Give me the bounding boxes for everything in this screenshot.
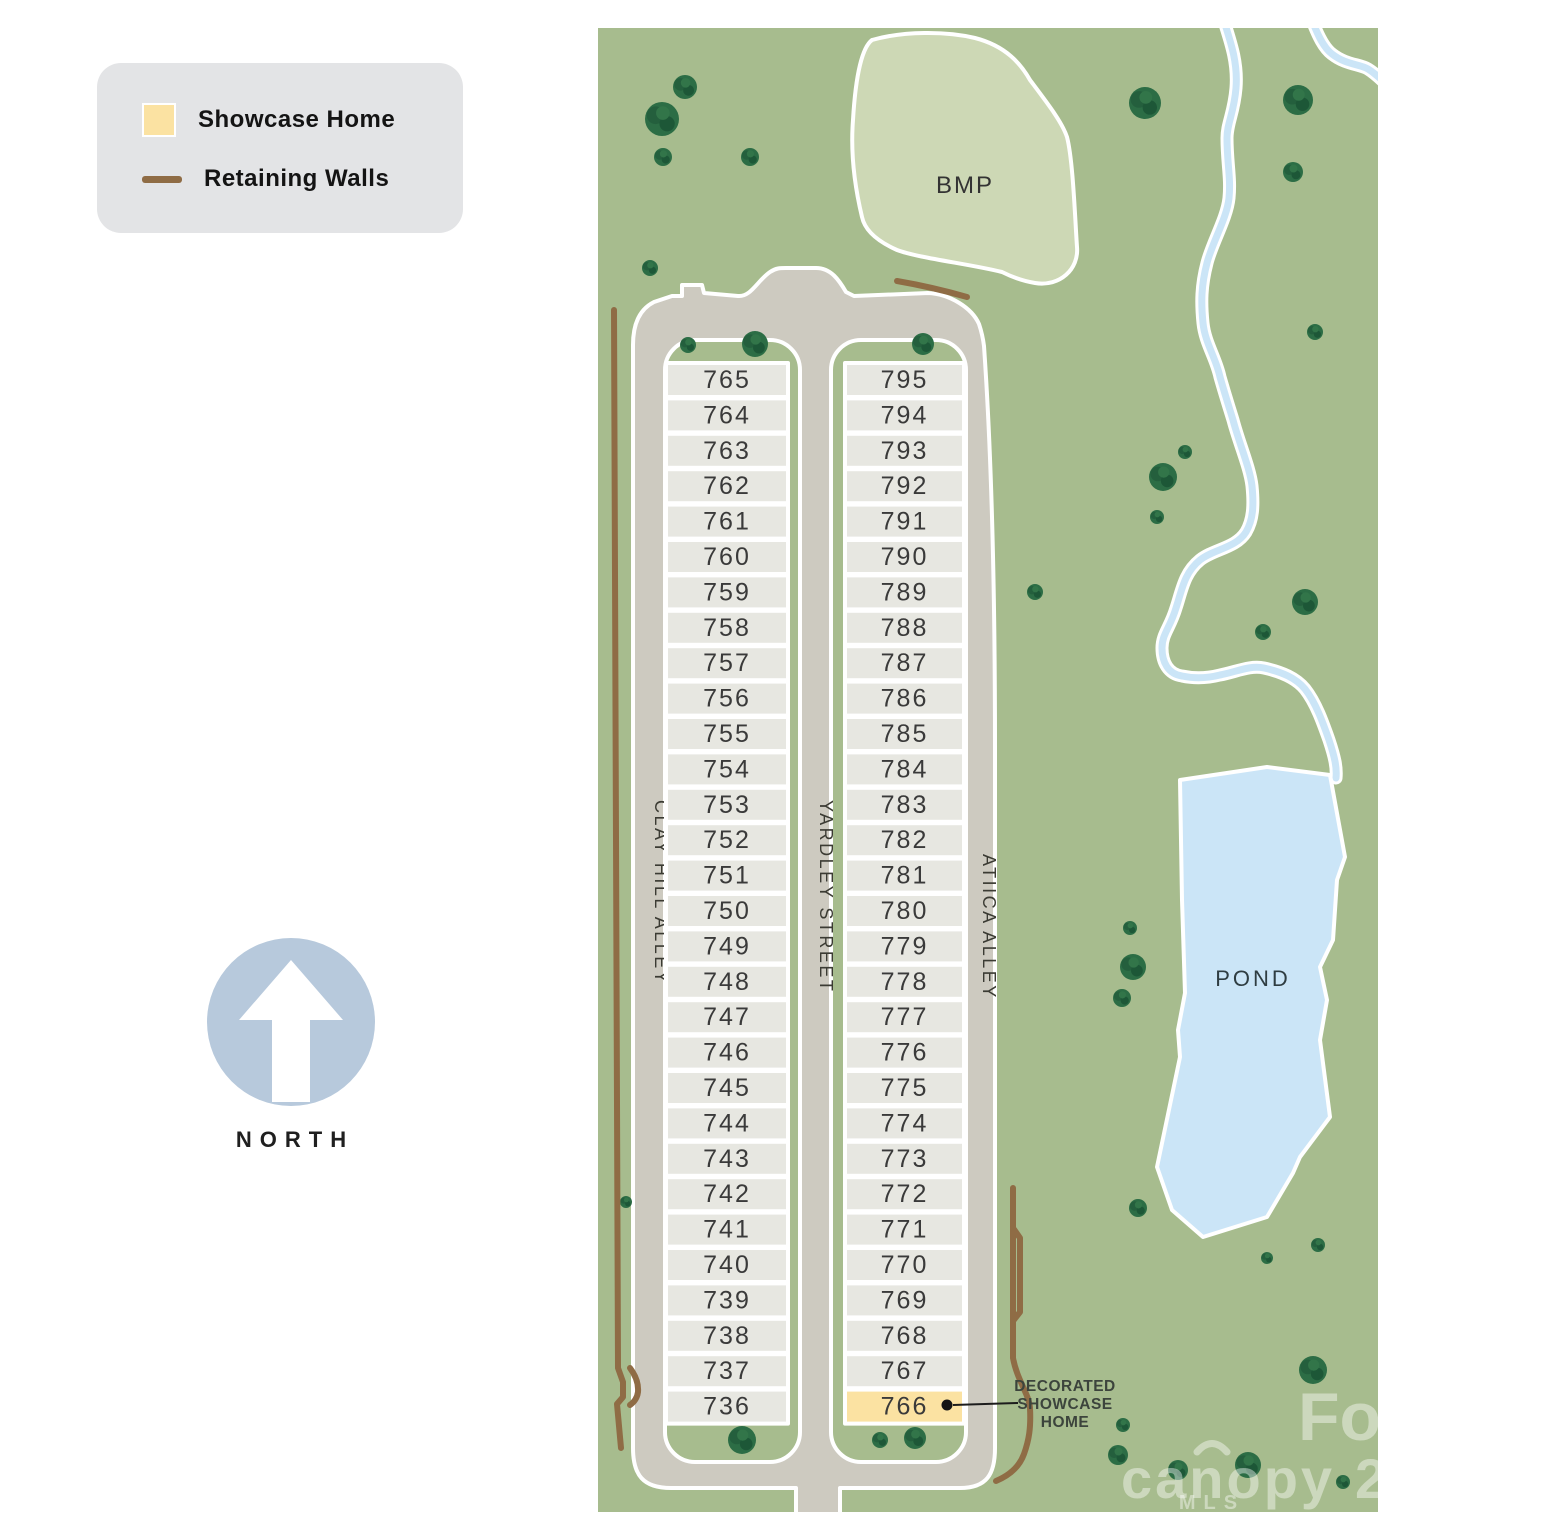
tree-icon — [654, 148, 672, 166]
legend-row-retaining: Retaining Walls — [142, 165, 463, 193]
tree-icon — [1261, 1252, 1273, 1264]
lot-number: 770 — [881, 1251, 929, 1279]
watermark-mls: MLS — [1179, 1492, 1245, 1512]
lot-number: 792 — [881, 472, 929, 500]
lot-number: 794 — [881, 401, 929, 429]
tree-icon — [620, 1196, 632, 1208]
lot-number: 773 — [881, 1145, 929, 1173]
tree-icon — [645, 102, 679, 136]
lot-number: 762 — [703, 472, 751, 500]
tree-icon — [1113, 989, 1131, 1007]
tree-icon — [872, 1432, 888, 1448]
tree-icon — [1129, 1199, 1147, 1217]
lot-number: 795 — [881, 366, 929, 394]
lot-number: 757 — [703, 649, 751, 677]
lot-number: 743 — [703, 1145, 751, 1173]
lot-number: 756 — [703, 685, 751, 713]
lot-number: 791 — [881, 508, 929, 536]
tree-icon — [912, 333, 934, 355]
lot-number: 778 — [881, 968, 929, 996]
lot-number: 742 — [703, 1180, 751, 1208]
tree-icon — [741, 148, 759, 166]
lot-number: 766 — [881, 1393, 929, 1421]
retaining-wall-swatch-icon — [142, 176, 182, 183]
pond-label: POND — [1215, 966, 1291, 991]
lot-number: 749 — [703, 932, 751, 960]
lot-number: 788 — [881, 614, 929, 642]
tree-icon — [1149, 463, 1177, 491]
lot-number: 767 — [881, 1357, 929, 1385]
tree-icon — [1283, 85, 1313, 115]
tree-icon — [642, 260, 658, 276]
north-label: NORTH — [205, 1127, 377, 1153]
lot-number: 755 — [703, 720, 751, 748]
lot-number: 771 — [881, 1216, 929, 1244]
callout-line-1: DECORATED — [1014, 1378, 1116, 1395]
lot-number: 741 — [703, 1216, 751, 1244]
lot-number: 769 — [881, 1286, 929, 1314]
lot-number: 787 — [881, 649, 929, 677]
lot-number: 737 — [703, 1357, 751, 1385]
watermark-for: For — [1298, 1379, 1378, 1455]
lot-number: 748 — [703, 968, 751, 996]
retaining-walls-label: Retaining Walls — [204, 165, 389, 193]
tree-icon — [1027, 584, 1043, 600]
street-label-yardley-street: YARDLEY STREET — [816, 800, 836, 993]
lot-number: 786 — [881, 685, 929, 713]
lot-number: 777 — [881, 1003, 929, 1031]
bmp-label: BMP — [936, 172, 994, 199]
tree-icon — [1292, 589, 1318, 615]
tree-icon — [1150, 510, 1164, 524]
tree-icon — [1123, 921, 1137, 935]
lot-number: 765 — [703, 366, 751, 394]
callout-dot-icon — [942, 1400, 953, 1411]
callout-line-2: SHOWCASE — [1017, 1396, 1112, 1413]
tree-icon — [1307, 324, 1323, 340]
lot-number: 747 — [703, 1003, 751, 1031]
tree-icon — [728, 1426, 756, 1454]
lot-number: 785 — [881, 720, 929, 748]
tree-icon — [1311, 1238, 1325, 1252]
tree-icon — [1283, 162, 1303, 182]
street-label-atiica-alley: ATIICA ALLEY — [979, 854, 999, 1000]
north-arrow-icon — [205, 936, 377, 1108]
lot-number: 744 — [703, 1109, 751, 1137]
tree-icon — [1129, 87, 1161, 119]
lot-number: 746 — [703, 1039, 751, 1067]
legend-row-showcase: Showcase Home — [142, 103, 463, 137]
lot-number: 774 — [881, 1109, 929, 1137]
tree-icon — [673, 75, 697, 99]
north-compass: NORTH — [205, 936, 377, 1153]
lot-number: 764 — [703, 401, 751, 429]
tree-icon — [1255, 624, 1271, 640]
lot-number: 783 — [881, 791, 929, 819]
lot-number: 759 — [703, 578, 751, 606]
lot-number: 740 — [703, 1251, 751, 1279]
lot-number: 752 — [703, 826, 751, 854]
tree-icon — [680, 337, 696, 353]
lot-number: 758 — [703, 614, 751, 642]
showcase-home-label: Showcase Home — [198, 106, 395, 134]
lot-number: 772 — [881, 1180, 929, 1208]
lot-number: 784 — [881, 755, 929, 783]
lot-number: 754 — [703, 755, 751, 783]
lot-number: 745 — [703, 1074, 751, 1102]
lot-number: 750 — [703, 897, 751, 925]
tree-icon — [904, 1427, 926, 1449]
lot-number: 763 — [703, 437, 751, 465]
lot-number: 789 — [881, 578, 929, 606]
watermark-year: 2 — [1355, 1447, 1378, 1510]
lot-number: 781 — [881, 862, 929, 890]
lot-number: 751 — [703, 862, 751, 890]
lot-number: 775 — [881, 1074, 929, 1102]
lot-number: 780 — [881, 897, 929, 925]
lot-number: 782 — [881, 826, 929, 854]
lot-number: 779 — [881, 932, 929, 960]
callout-line-3: HOME — [1041, 1414, 1090, 1431]
showcase-home-swatch-icon — [142, 103, 176, 137]
tree-icon — [1116, 1418, 1130, 1432]
lot-number: 761 — [703, 508, 751, 536]
lot-number: 790 — [881, 543, 929, 571]
tree-icon — [742, 331, 768, 357]
tree-icon — [1336, 1475, 1350, 1489]
lot-number: 736 — [703, 1393, 751, 1421]
lot-number: 760 — [703, 543, 751, 571]
map-legend: Showcase Home Retaining Walls — [97, 63, 463, 233]
lot-number: 738 — [703, 1322, 751, 1350]
lot-number: 776 — [881, 1039, 929, 1067]
site-map: BMP POND CLAY HILL ALLEY YARDLEY STREET … — [598, 28, 1378, 1512]
tree-icon — [1120, 954, 1146, 980]
lot-number: 753 — [703, 791, 751, 819]
tree-icon — [1178, 445, 1192, 459]
lot-number: 793 — [881, 437, 929, 465]
lot-number: 768 — [881, 1322, 929, 1350]
lot-number: 739 — [703, 1286, 751, 1314]
